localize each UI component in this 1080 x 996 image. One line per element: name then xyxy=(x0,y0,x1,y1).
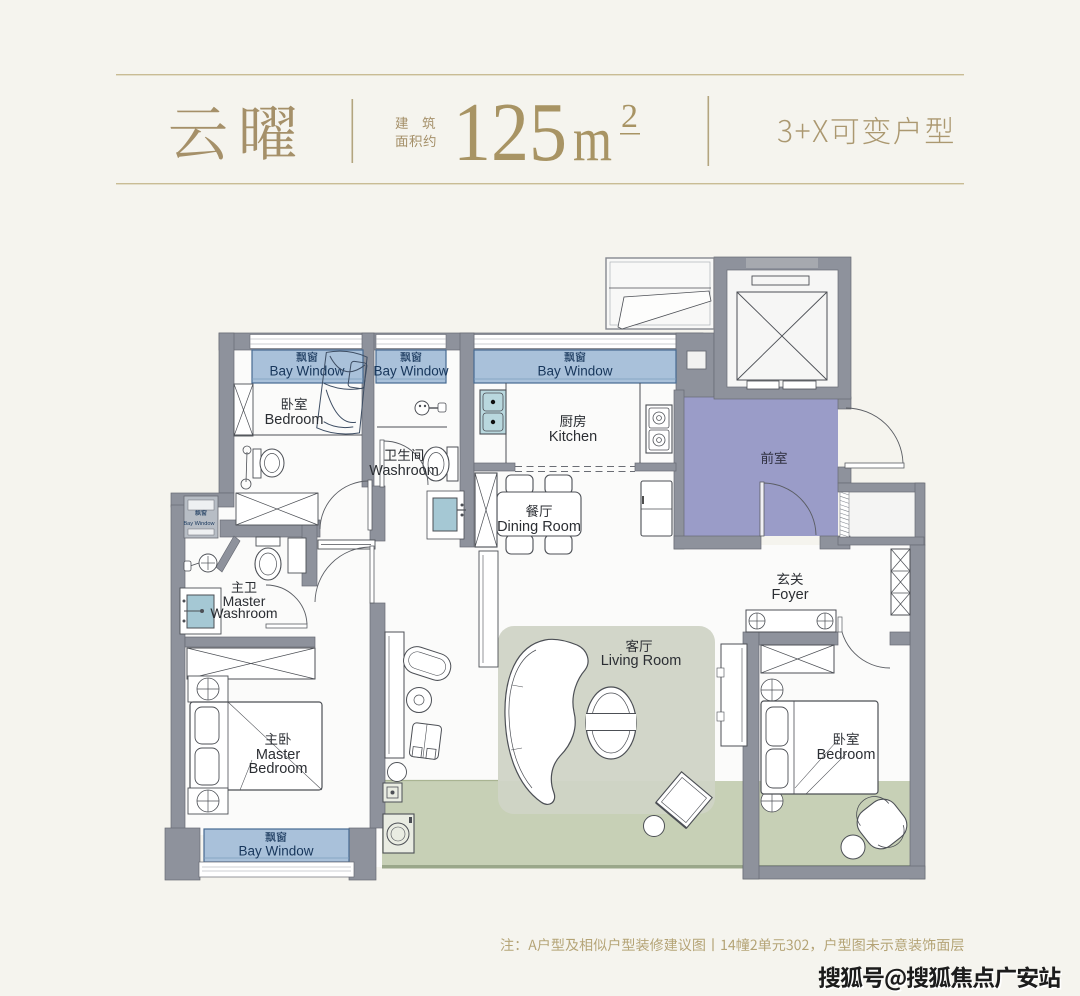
svg-text:Bay Window: Bay Window xyxy=(373,364,448,379)
svg-text:Bay Window: Bay Window xyxy=(183,521,215,527)
svg-text:m: m xyxy=(573,106,612,174)
svg-text:Living Room: Living Room xyxy=(601,653,682,669)
svg-text:Bedroom: Bedroom xyxy=(249,761,308,777)
svg-text:Bay Window: Bay Window xyxy=(269,364,344,379)
svg-text:Foyer: Foyer xyxy=(771,587,808,603)
svg-text:Washroom: Washroom xyxy=(369,463,439,479)
svg-text:Dining Room: Dining Room xyxy=(497,519,581,535)
svg-text:2: 2 xyxy=(621,98,638,135)
svg-text:Kitchen: Kitchen xyxy=(549,429,597,445)
svg-text:Washroom: Washroom xyxy=(210,605,277,621)
svg-text:Bay Window: Bay Window xyxy=(537,364,612,379)
svg-text:125: 125 xyxy=(453,86,567,179)
svg-text:Bedroom: Bedroom xyxy=(265,412,324,428)
svg-text:Bedroom: Bedroom xyxy=(817,747,876,763)
svg-text:Bay Window: Bay Window xyxy=(238,844,313,859)
